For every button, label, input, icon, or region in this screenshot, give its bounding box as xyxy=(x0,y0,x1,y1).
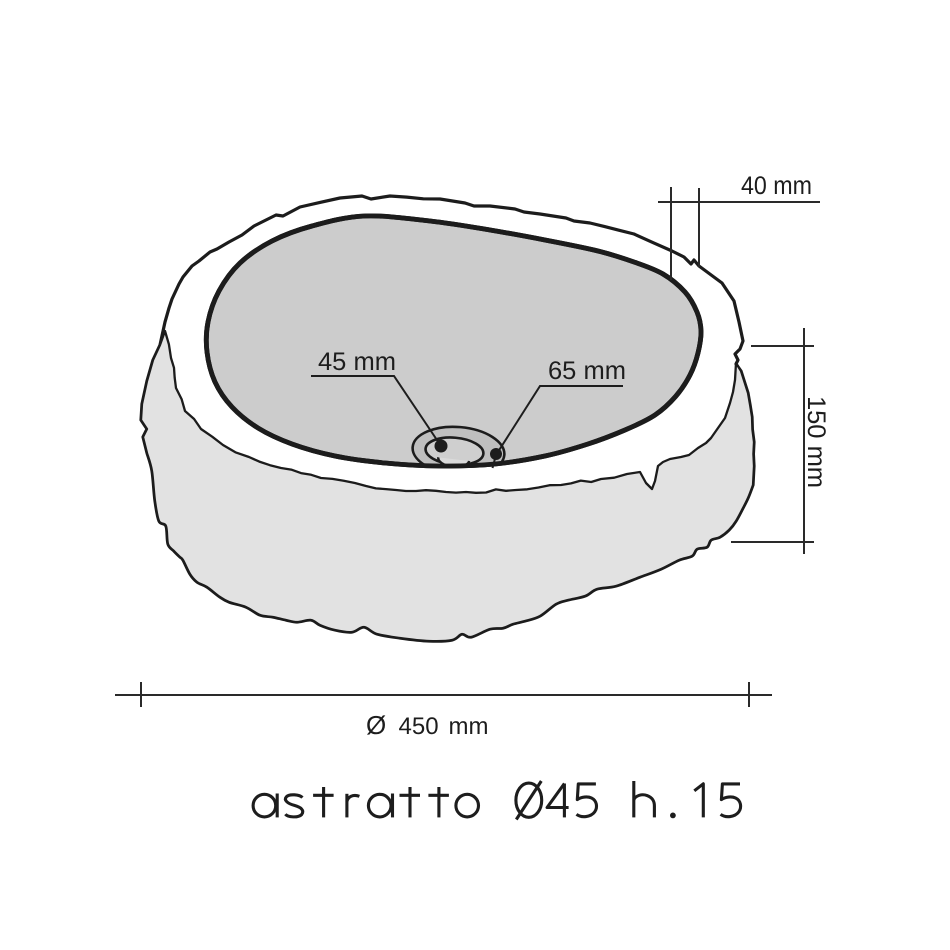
svg-text:Ø450mm: Ø450mm xyxy=(366,710,488,740)
svg-text:150 mm: 150 mm xyxy=(802,396,830,488)
svg-text:40 mm: 40 mm xyxy=(741,172,812,200)
svg-text:65 mm: 65 mm xyxy=(548,357,626,385)
svg-text:45 mm: 45 mm xyxy=(318,348,396,376)
